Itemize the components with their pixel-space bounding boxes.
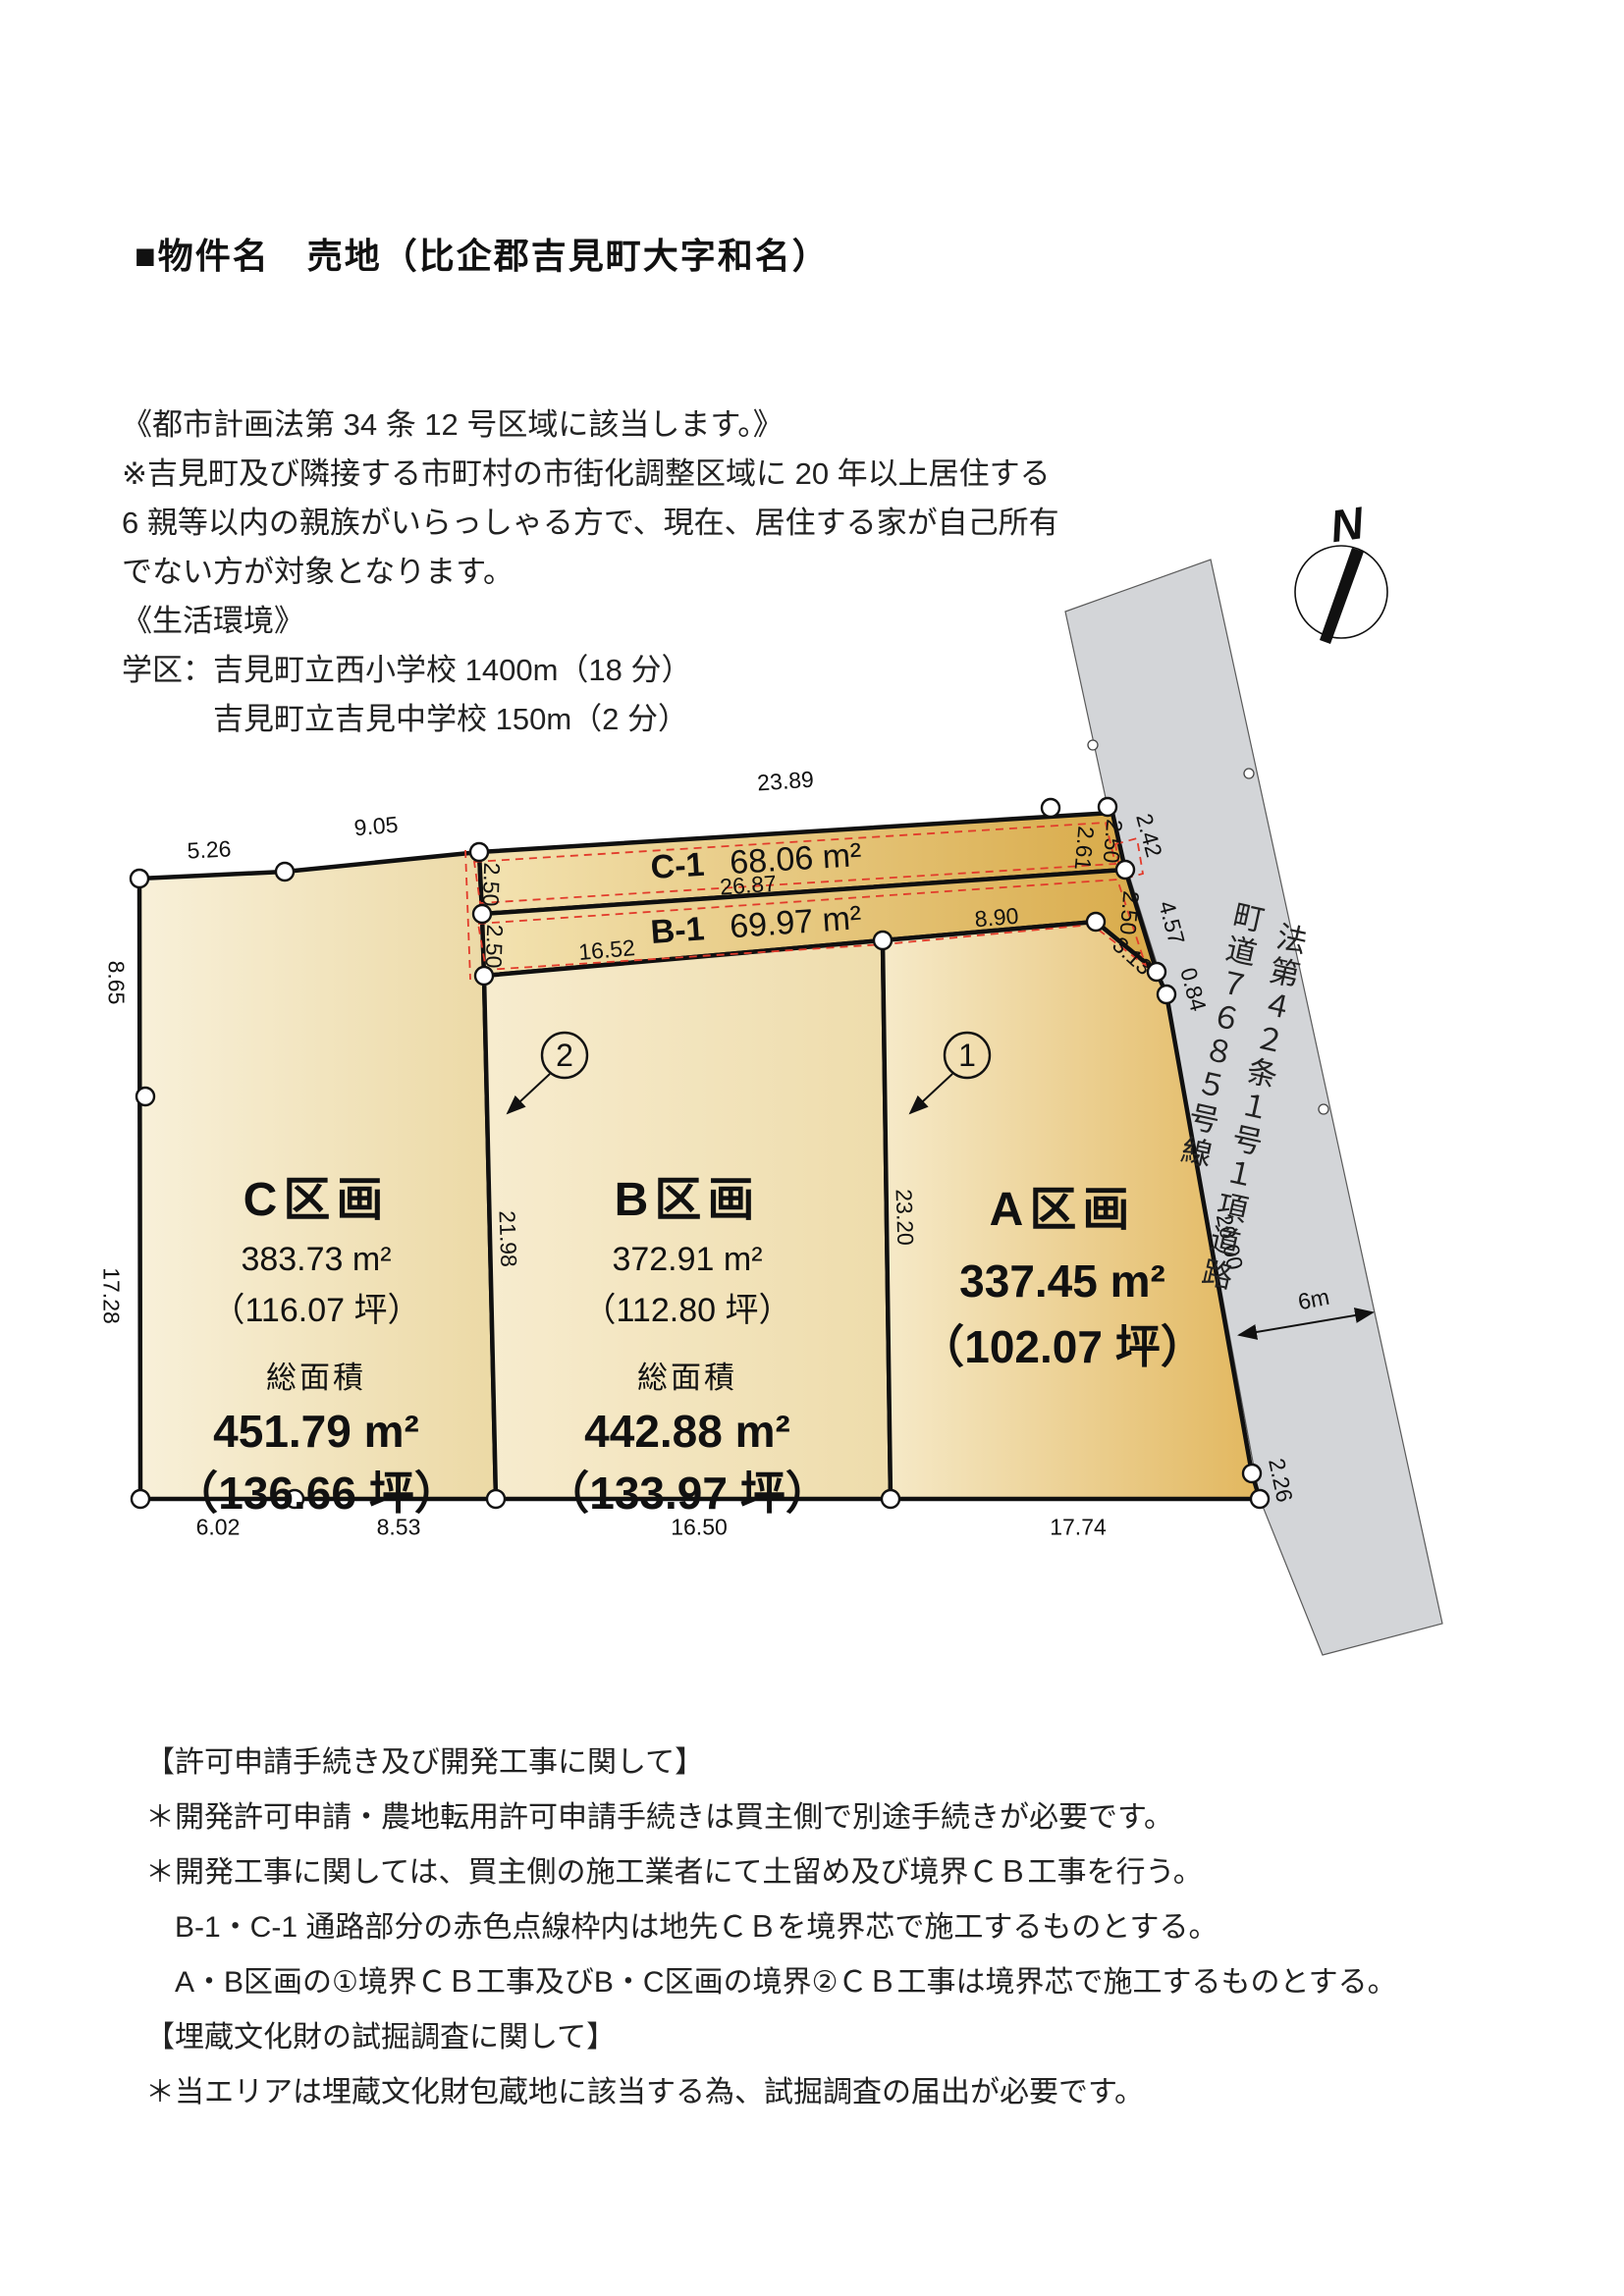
text-line: ※吉見町及び隣接する市町村の市街化調整区域に 20 年以上居住する [122,450,1059,499]
notes-block: 《都市計画法第 34 条 12 号区域に該当します。》※吉見町及び隣接する市町村… [122,400,1059,744]
text-line: 《都市計画法第 34 条 12 号区域に該当します。》 [122,400,1059,450]
parcel-b-name: B区画 [544,1160,830,1229]
dimension-label: 17.74 [1050,1515,1107,1541]
dimension-label: 2.50 [1114,890,1145,936]
flyer-page: 2 1 N ■物件名 売地（比企郡吉見町大字和名） 《都市計画法第 34 条 1… [0,0,1624,2296]
dimension-label: 21.98 [494,1210,522,1267]
text-line: 吉見町立吉見中学校 150m（2 分） [122,695,1059,744]
text-line: でない方が対象となります。 [122,548,1059,597]
dimension-label: 2.50 [477,862,506,907]
parcel-a-label: A区画 337.45 m² （102.07 坪） [919,1170,1205,1376]
parcel-a-area: 337.45 m² [919,1255,1205,1308]
parcel-c1-name: C-1 [650,846,706,886]
parcel-c-total-area: 451.79 m² [173,1405,459,1458]
text-line: A・B区画の①境界ＣＢ工事及びB・C区画の境界②ＣＢ工事は境界芯で施工するものと… [145,1955,1397,2010]
text-line: ＊開発工事に関しては、買主側の施工業者にて土留め及び境界ＣＢ工事を行う。 [145,1845,1397,1900]
boundary-marker-2-label: 2 [556,1038,573,1073]
text-line: ＊開発許可申請・農地転用許可申請手続きは買主側で別途手続きが必要です。 [145,1790,1397,1845]
parcel-b1-area: 69.97 m² [729,899,863,945]
dimension-label: 23.89 [756,767,814,797]
text-line: 6 親等以内の親族がいらっしゃる方で、現在、居住する家が自己所有 [122,499,1059,548]
text-line: ＊当エリアは埋蔵文化財包蔵地に該当する為、試掘調査の届出が必要です。 [145,2065,1397,2120]
parcel-c1-area: 68.06 m² [729,836,862,881]
parcel-c-total-tsubo: （136.66 坪） [173,1458,459,1522]
north-compass-icon: N [1295,497,1387,644]
boundary-marker-1-label: 1 [958,1038,976,1073]
parcel-a-name: A区画 [919,1170,1205,1239]
parcel-b-total-tsubo: （133.97 坪） [544,1458,830,1522]
dimension-label: 16.52 [577,934,636,966]
dimension-label: 2.50 [1098,819,1128,865]
parcel-b-label: B区画 372.91 m² （112.80 坪） 総面積 442.88 m² （… [544,1160,830,1522]
parcel-b1-name: B-1 [649,910,705,951]
text-line: 【埋蔵文化財の試掘調査に関して】 [145,2010,1397,2065]
dimension-label: 2.61 [1069,826,1100,872]
dimension-label: 2.50 [480,924,509,969]
remarks-block: 【許可申請手続き及び開発工事に関して】＊開発許可申請・農地転用許可申請手続きは買… [145,1735,1397,2120]
dimension-label: 17.28 [98,1267,125,1324]
parcel-c-area: 383.73 m² [173,1241,459,1279]
parcel-c-name: C区画 [173,1160,459,1229]
text-line: 学区：吉見町立西小学校 1400m（18 分） [122,646,1059,695]
dimension-label: 8.65 [103,961,130,1005]
parcel-b-total-label: 総面積 [544,1353,830,1397]
text-line: 《生活環境》 [122,597,1059,646]
parcel-b-area: 372.91 m² [544,1241,830,1279]
page-title: ■物件名 売地（比企郡吉見町大字和名） [135,228,830,279]
dimension-label: 5.26 [187,835,232,864]
parcel-c-label: C区画 383.73 m² （116.07 坪） 総面積 451.79 m² （… [173,1160,459,1522]
dimension-label: 23.20 [891,1189,919,1246]
text-line: B-1・C-1 通路部分の赤色点線枠内は地先ＣＢを境界芯で施工するものとする。 [145,1900,1397,1955]
parcel-a-tsubo: （102.07 坪） [919,1311,1205,1376]
parcel-c-total-label: 総面積 [173,1353,459,1397]
text-line: 【許可申請手続き及び開発工事に関して】 [145,1735,1397,1790]
dimension-label: 8.90 [974,903,1020,934]
parcel-b-tsubo: （112.80 坪） [544,1283,830,1331]
parcel-c-tsubo: （116.07 坪） [173,1283,459,1331]
parcel-b-total-area: 442.88 m² [544,1405,830,1458]
north-label: N [1327,497,1368,552]
dimension-label: 9.05 [353,812,400,842]
